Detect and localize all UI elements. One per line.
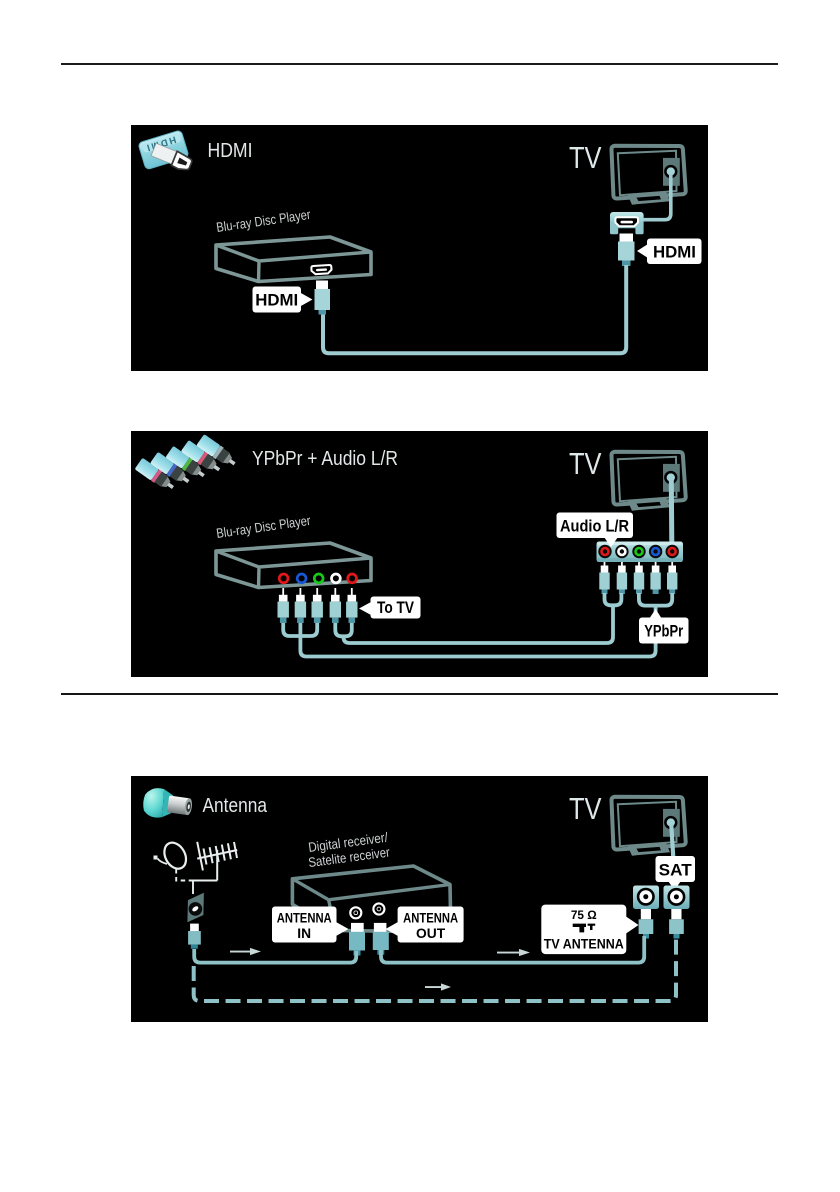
svg-text:IN: IN <box>297 926 311 941</box>
svg-text:OUT: OUT <box>416 926 446 941</box>
svg-text:TV: TV <box>569 140 602 175</box>
svg-text:HDMI: HDMI <box>208 140 253 162</box>
svg-text:TV ANTENNA: TV ANTENNA <box>544 937 624 952</box>
svg-text:SAT: SAT <box>659 861 693 880</box>
svg-text:ANTENNA: ANTENNA <box>403 911 458 926</box>
svg-text:To TV: To TV <box>377 599 414 617</box>
svg-text:YPbPr: YPbPr <box>644 623 683 641</box>
svg-text:Audio L/R: Audio L/R <box>560 518 629 536</box>
svg-text:TV: TV <box>569 446 602 481</box>
svg-text:HDMI: HDMI <box>255 291 298 310</box>
svg-text:YPbPr + Audio L/R: YPbPr + Audio L/R <box>252 447 398 470</box>
svg-text:Antenna: Antenna <box>203 794 268 817</box>
svg-text:HDMI: HDMI <box>653 243 696 262</box>
svg-text:ANTENNA: ANTENNA <box>277 911 332 926</box>
svg-text:75 Ω: 75 Ω <box>571 908 597 922</box>
svg-text:TV: TV <box>569 791 602 826</box>
